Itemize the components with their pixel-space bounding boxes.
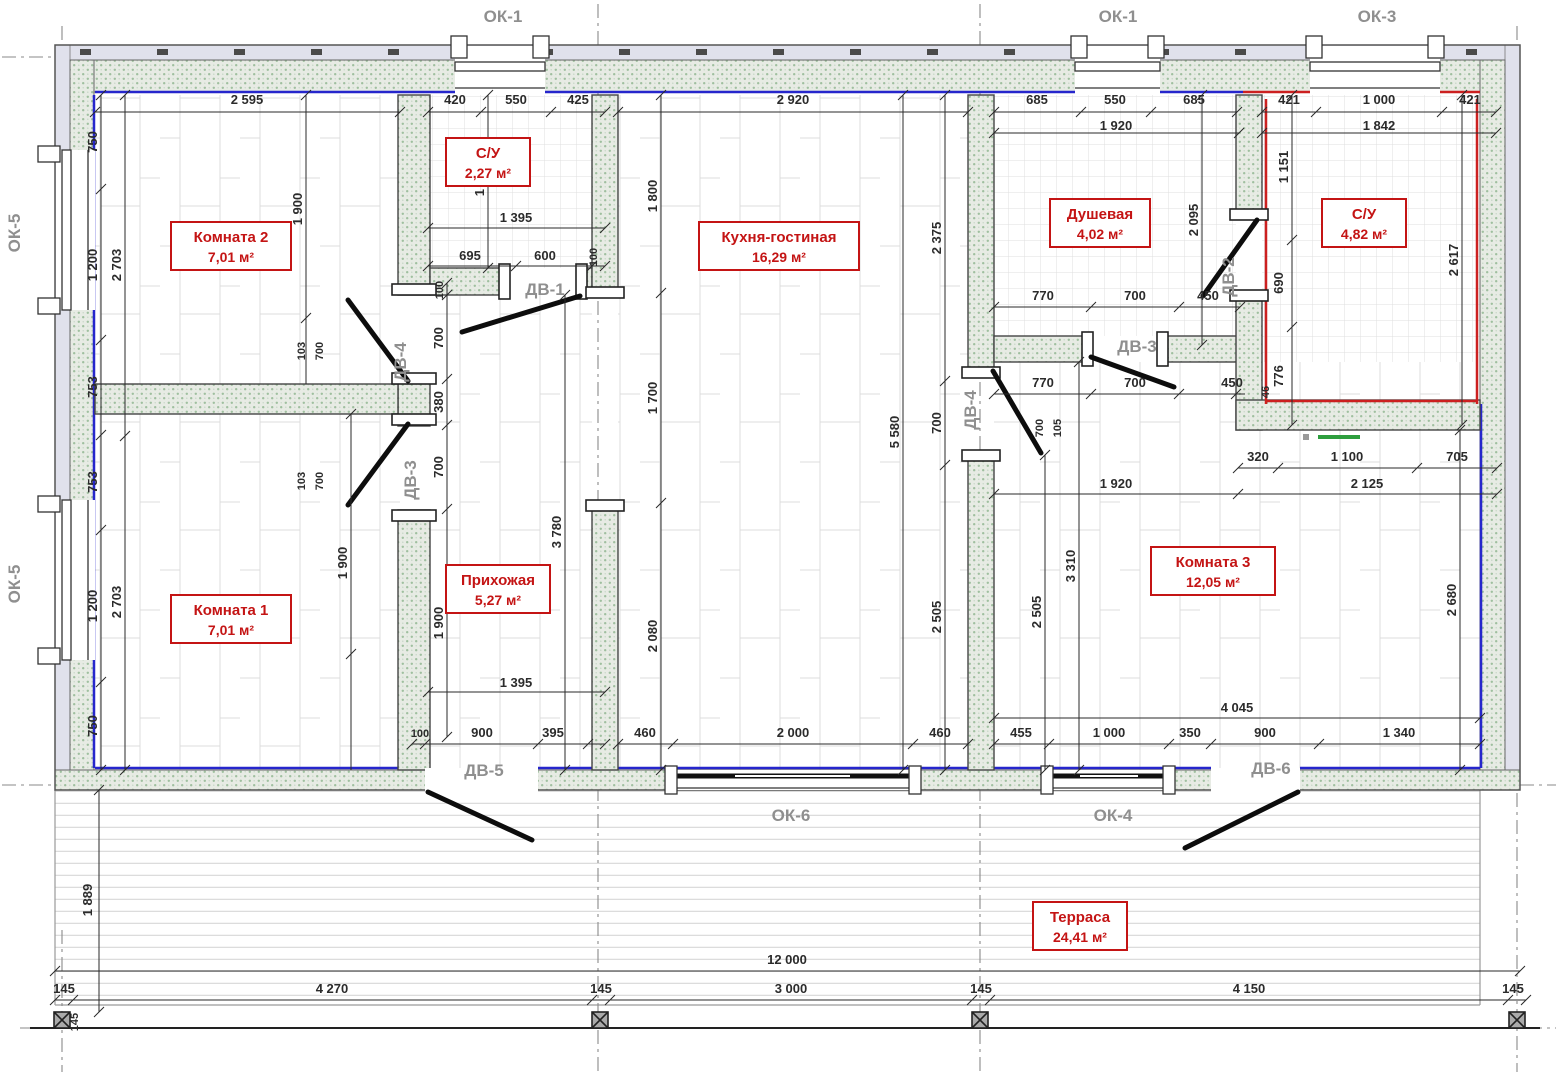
dim-label: 145 — [1502, 981, 1524, 996]
dim-label: 460 — [929, 725, 951, 740]
dim-label: 455 — [1010, 725, 1032, 740]
dim-label: 550 — [505, 92, 527, 107]
room-area: 4,82 м² — [1341, 226, 1387, 242]
dim-label: 100 — [411, 728, 429, 740]
dim-label: 105 — [1052, 419, 1064, 437]
dim-label: 700 — [929, 412, 944, 434]
dim-label: 1 000 — [1093, 725, 1126, 740]
door-tag-dv1: ДВ-1 — [525, 280, 565, 299]
dim-label: 2 505 — [1029, 596, 1044, 629]
room-label-su2: С/У 4,82 м² — [1322, 199, 1406, 247]
dim-label: 750 — [85, 131, 100, 153]
room-area: 4,02 м² — [1077, 226, 1123, 242]
room-label-shower: Душевая 4,02 м² — [1050, 199, 1150, 247]
dim-label: 4 045 — [1221, 700, 1254, 715]
dim-label: 145 — [53, 981, 75, 996]
dim-label: 425 — [567, 92, 589, 107]
room-name: Комната 3 — [1176, 554, 1251, 571]
dim-label: 690 — [1271, 272, 1286, 294]
room-area: 2,27 м² — [465, 165, 511, 181]
room-name: Комната 2 — [194, 229, 269, 246]
terrace-deck — [55, 790, 1480, 1005]
window-tag-ok1: ОК-1 — [1099, 7, 1138, 26]
dim-label: 685 — [1183, 92, 1205, 107]
floor-plan-canvas: 2 595 420 550 425 2 920 685 550 685 421 … — [0, 0, 1558, 1080]
room-label-kitchen: Кухня-гостиная 16,29 м² — [699, 222, 859, 270]
dim-label: 1 920 — [1100, 476, 1133, 491]
dim-label: 900 — [471, 725, 493, 740]
dim-label: 1 200 — [85, 590, 100, 623]
dim-label: 145 — [970, 981, 992, 996]
room-name: Прихожая — [461, 572, 535, 589]
room-area: 24,41 м² — [1053, 929, 1107, 945]
dim-label: 2 703 — [109, 586, 124, 619]
dim-label: 320 — [1247, 449, 1269, 464]
dim-label: 395 — [542, 725, 564, 740]
dim-label: 705 — [1446, 449, 1468, 464]
door-tag-dv4: ДВ-4 — [391, 342, 410, 382]
dim-label: 380 — [431, 391, 446, 413]
dim-label: 1 100 — [1331, 449, 1364, 464]
window-tag-ok4: ОК-4 — [1094, 806, 1133, 825]
dim-label: 3 000 — [775, 981, 808, 996]
dim-label: 420 — [444, 92, 466, 107]
dim-label: 2 505 — [929, 601, 944, 634]
window-ok5-top — [38, 146, 95, 314]
dim-label: 900 — [1254, 725, 1276, 740]
dim-label: 600 — [534, 248, 556, 263]
dim-label: 770 — [1032, 288, 1054, 303]
dim-label: 700 — [1124, 375, 1146, 390]
dim-label: 2 703 — [109, 249, 124, 282]
room-name: С/У — [1352, 206, 1377, 223]
dim-label: 46 — [1260, 386, 1272, 398]
dim-label: 700 — [1034, 419, 1046, 437]
room-area: 5,27 м² — [475, 592, 521, 608]
dim-label: 5 580 — [887, 416, 902, 449]
dim-label: 2 095 — [1186, 204, 1201, 237]
dim-label: 753 — [85, 376, 100, 398]
window-tag-ok5: ОК-5 — [5, 565, 24, 604]
dim-label: 4 270 — [316, 981, 349, 996]
dim-label: 685 — [1026, 92, 1048, 107]
dim-label: 2 680 — [1444, 584, 1459, 617]
dim-label: 3 780 — [549, 516, 564, 549]
window-ok6 — [665, 766, 921, 794]
room-label-komnata1: Комната 1 7,01 м² — [171, 595, 291, 643]
dim-label: 350 — [1179, 725, 1201, 740]
window-tag-ok6: ОК-6 — [772, 806, 811, 825]
room-label-komnata3: Комната 3 12,05 м² — [1151, 547, 1275, 595]
window-tag-ok3: ОК-3 — [1358, 7, 1397, 26]
dim-label: 2 080 — [645, 620, 660, 653]
dim-label: 145 — [590, 981, 612, 996]
dim-label: 2 375 — [929, 222, 944, 255]
dim-label: 100 — [434, 281, 446, 299]
room-label-terrace: Терраса 24,41 м² — [1033, 902, 1127, 950]
dim-label: 700 — [314, 472, 326, 490]
dim-label: 1 000 — [1363, 92, 1396, 107]
dim-label: 1 395 — [500, 210, 533, 225]
room-area: 12,05 м² — [1186, 574, 1240, 590]
dim-label: 750 — [85, 715, 100, 737]
dim-label: 103 — [296, 472, 308, 490]
dim-label: 753 — [85, 471, 100, 493]
dim-label: 700 — [1124, 288, 1146, 303]
dim-label: 1 700 — [645, 382, 660, 415]
dim-label: 450 — [1221, 375, 1243, 390]
window-tag-ok5: ОК-5 — [5, 214, 24, 253]
room-name: С/У — [476, 145, 501, 162]
dim-label: 1 200 — [85, 249, 100, 282]
dim-label: 776 — [1271, 365, 1286, 387]
dim-label: 1 842 — [1363, 118, 1396, 133]
dim-label: 2 125 — [1351, 476, 1384, 491]
door-tag-dv2: ДВ-2 — [1219, 257, 1238, 297]
dim-label: 2 000 — [777, 725, 810, 740]
floor-plan-page: 2 595 420 550 425 2 920 685 550 685 421 … — [0, 0, 1558, 1080]
dim-label: 700 — [314, 342, 326, 360]
dim-label: 145 — [69, 1013, 81, 1031]
dim-label: 100 — [588, 248, 600, 266]
door-tag-dv6: ДВ-6 — [1251, 759, 1291, 778]
room-label-hall: Прихожая 5,27 м² — [446, 565, 550, 613]
room-area: 7,01 м² — [208, 622, 254, 638]
door-tag-dv4: ДВ-4 — [961, 390, 980, 430]
window-tag-ok1: ОК-1 — [484, 7, 523, 26]
room-name: Терраса — [1050, 909, 1111, 926]
door-tag-dv3: ДВ-3 — [401, 460, 420, 500]
room-name: Душевая — [1067, 206, 1133, 223]
room-label-komnata2: Комната 2 7,01 м² — [171, 222, 291, 270]
dim-label: 550 — [1104, 92, 1126, 107]
dim-label: 700 — [431, 327, 446, 349]
dim-label: 460 — [634, 725, 656, 740]
dim-label: 1 340 — [1383, 725, 1416, 740]
dim-label: 1 900 — [335, 547, 350, 580]
window-ok4 — [1041, 766, 1175, 794]
door-tag-dv3: ДВ-3 — [1117, 337, 1157, 356]
dim-label: 103 — [296, 342, 308, 360]
window-ok5-bottom — [38, 496, 95, 664]
dim-label: 4 150 — [1233, 981, 1266, 996]
room-area: 7,01 м² — [208, 249, 254, 265]
dim-label: 3 310 — [1063, 550, 1078, 583]
dim-label: 12 000 — [767, 952, 807, 967]
room-name: Комната 1 — [194, 602, 269, 619]
room-area: 16,29 м² — [752, 249, 806, 265]
dim-label: 1 889 — [80, 884, 95, 917]
door-tag-dv5: ДВ-5 — [464, 761, 504, 780]
dim-label: 2 617 — [1446, 244, 1461, 277]
room-name: Кухня-гостиная — [722, 229, 837, 246]
dim-label: 1 920 — [1100, 118, 1133, 133]
dim-label: 2 920 — [777, 92, 810, 107]
dim-label: 770 — [1032, 375, 1054, 390]
room-label-su1: С/У 2,27 м² — [446, 138, 530, 186]
dim-label: 1 900 — [290, 193, 305, 226]
dim-label: 421 — [1459, 92, 1481, 107]
dim-label: 700 — [431, 456, 446, 478]
dim-label: 1 395 — [500, 675, 533, 690]
dim-label: 1 800 — [645, 180, 660, 213]
dim-label: 2 595 — [231, 92, 264, 107]
dim-label: 450 — [1197, 288, 1219, 303]
dim-label: 421 — [1278, 92, 1300, 107]
dim-label: 695 — [459, 248, 481, 263]
dim-label: 1 900 — [431, 607, 446, 640]
terrace-posts — [54, 1012, 1525, 1028]
dim-label: 1 151 — [1276, 151, 1291, 184]
